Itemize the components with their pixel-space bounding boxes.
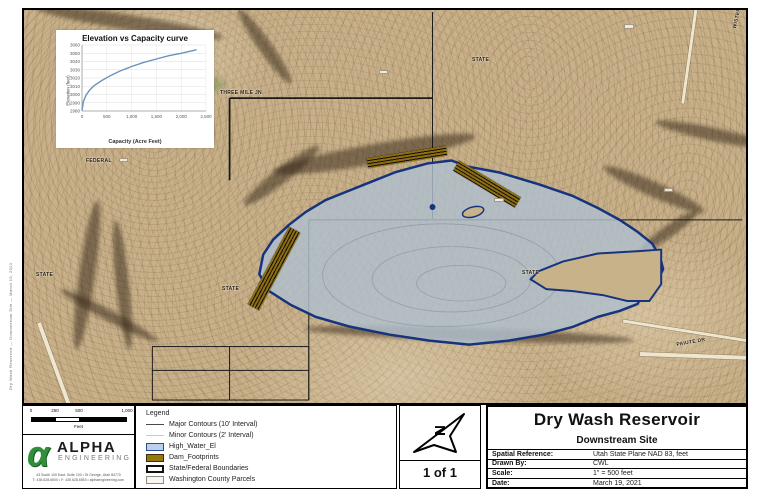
scale-unit: Feet <box>23 424 134 429</box>
legend-item-minor-contours: Minor Contours (2' Interval) <box>146 430 386 441</box>
legend-title: Legend <box>146 410 386 417</box>
svg-text:500: 500 <box>103 114 111 119</box>
legend-item-major-contours: Major Contours (10' Interval) <box>146 419 386 430</box>
scale-segment <box>79 418 126 421</box>
svg-text:3050: 3050 <box>70 51 81 56</box>
north-arrow-section: N <box>400 406 480 461</box>
elevation-capacity-chart: Elevation vs Capacity curve Elevation (f… <box>56 30 214 148</box>
logo-contact: T: 435.628.6500 • F: 435.628.6553 • alph… <box>23 478 134 482</box>
scale-tick-label: 250 <box>51 408 59 413</box>
capacity-curve-plot: 3060305030403030302030103000299029800500… <box>56 30 214 148</box>
map-label: STATE <box>36 272 53 278</box>
svg-text:3060: 3060 <box>70 43 81 48</box>
svg-text:3040: 3040 <box>70 59 81 64</box>
drawing-title: Dry Wash Reservoir <box>488 407 746 435</box>
major-contour-line-icon <box>146 424 164 425</box>
svg-text:2,000: 2,000 <box>176 114 188 119</box>
titleblock-row-drawnby: Drawn By: CWL <box>488 460 746 470</box>
svg-text:2980: 2980 <box>70 109 81 114</box>
alpha-glyph-icon: α <box>27 433 49 475</box>
map-label: PAIUTE DR <box>676 337 706 348</box>
svg-text:3020: 3020 <box>70 76 81 81</box>
legend-item-county-parcels: Washington County Parcels <box>146 474 386 485</box>
svg-text:3030: 3030 <box>70 67 81 72</box>
svg-text:3000: 3000 <box>70 92 81 97</box>
map-label: THREE MILE JN <box>220 90 262 96</box>
svg-text:1,000: 1,000 <box>126 114 138 119</box>
plan-sheet: Dry Wash Reservoir — Downstream Site — M… <box>0 0 773 500</box>
map-label: STATE <box>472 57 489 63</box>
svg-text:1,500: 1,500 <box>151 114 163 119</box>
title-block: Dry Wash Reservoir Downstream Site Spati… <box>486 405 748 489</box>
chart-x-axis-label: Capacity (Acre Feet) <box>56 139 214 145</box>
logo-name: ALPHA <box>57 439 116 456</box>
map-label: WISTERIA WAY <box>732 8 746 29</box>
scale-tick-label: 500 <box>75 408 83 413</box>
dam-footprint-swatch-icon <box>146 454 164 462</box>
alpha-engineering-logo: α ALPHA ENGINEERING 43 South 100 East, S… <box>23 435 134 485</box>
minor-contour-line-icon <box>146 435 164 436</box>
county-parcel-swatch-icon <box>146 476 164 484</box>
scale-logo-box: 02505001,000 Feet α ALPHA ENGINEERING 43… <box>22 405 135 489</box>
map-label: FEDERAL <box>86 158 112 164</box>
legend-item-dam-footprints: Dam_Footprints <box>146 452 386 463</box>
scale-tick-label: 0 <box>30 408 33 413</box>
map-label: STATE <box>222 286 239 292</box>
titleblock-row-date: Date: March 19, 2021 <box>488 479 746 489</box>
logo-subname: ENGINEERING <box>58 455 131 462</box>
titleblock-row-spatial: Spatial Reference: Utah State Plane NAD … <box>488 450 746 460</box>
legend-item-high-water: High_Water_El <box>146 441 386 452</box>
legend-box: Legend Major Contours (10' Interval) Min… <box>135 405 397 489</box>
map-label: STATE <box>522 270 539 276</box>
logo-address: 43 South 100 East, Suite 100 • St George… <box>23 473 134 477</box>
scale-tick-label: 1,000 <box>121 408 132 413</box>
svg-text:3010: 3010 <box>70 84 81 89</box>
page-number: 1 of 1 <box>400 461 480 487</box>
titleblock-row-scale: Scale: 1" = 500 feet <box>488 469 746 479</box>
high-water-swatch-icon <box>146 443 164 451</box>
scale-tick-labels: 02505001,000 <box>31 408 127 416</box>
north-letter: N <box>431 425 448 436</box>
north-arrow-box: N 1 of 1 <box>399 405 481 489</box>
sheet-side-note: Dry Wash Reservoir — Downstream Site — M… <box>8 262 13 390</box>
scale-segment <box>32 418 56 421</box>
legend-item-state-federal: State/Federal Boundaries <box>146 463 386 474</box>
svg-text:2,500: 2,500 <box>200 114 212 119</box>
scale-bar-section: 02505001,000 Feet <box>23 406 134 435</box>
drawing-subtitle: Downstream Site <box>488 435 746 450</box>
svg-text:0: 0 <box>81 114 84 119</box>
svg-text:2990: 2990 <box>70 100 81 105</box>
state-federal-swatch-icon <box>146 465 164 473</box>
scale-bar <box>31 417 127 422</box>
map-canvas: THREE MILE JNFEDERALSTATESTATESTATESTATE… <box>22 8 748 405</box>
